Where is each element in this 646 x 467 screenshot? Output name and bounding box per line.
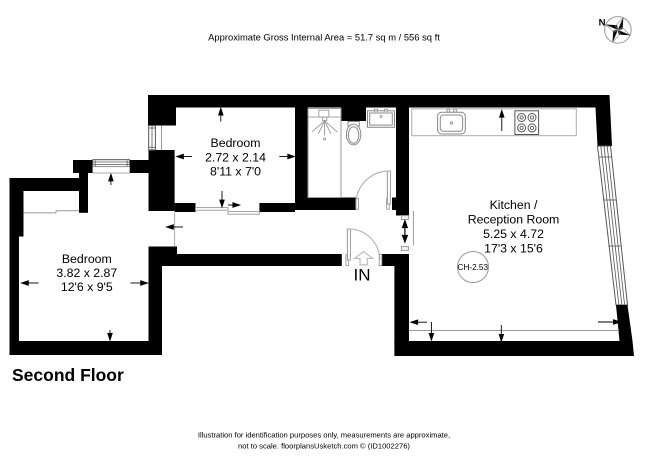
svg-text:12'6 x 9'5: 12'6 x 9'5 [61, 280, 113, 294]
svg-text:IN: IN [354, 266, 371, 285]
svg-text:CH-2.53: CH-2.53 [458, 263, 489, 272]
svg-text:N: N [599, 18, 606, 29]
svg-text:5.25 x 4.72: 5.25 x 4.72 [483, 227, 544, 241]
svg-text:17'3 x 15'6: 17'3 x 15'6 [484, 241, 543, 255]
svg-text:8'11 x 7'0: 8'11 x 7'0 [210, 165, 261, 179]
svg-text:Kitchen /: Kitchen / [490, 198, 538, 212]
svg-text:Reception Room: Reception Room [468, 212, 560, 226]
svg-text:2.72 x 2.14: 2.72 x 2.14 [205, 151, 266, 165]
svg-text:Bedroom: Bedroom [211, 136, 261, 150]
svg-text:Second Floor: Second Floor [12, 365, 124, 385]
svg-text:Illustration for identificatio: Illustration for identification purposes… [198, 430, 450, 439]
svg-text:Approximate Gross Internal Are: Approximate Gross Internal Area = 51.7 s… [208, 32, 440, 43]
svg-text:Bedroom: Bedroom [62, 252, 112, 266]
svg-text:not to scale. floorplansUsketc: not to scale. floorplansUsketch.com © (I… [238, 442, 410, 451]
svg-text:3.82 x 2.87: 3.82 x 2.87 [56, 266, 117, 280]
